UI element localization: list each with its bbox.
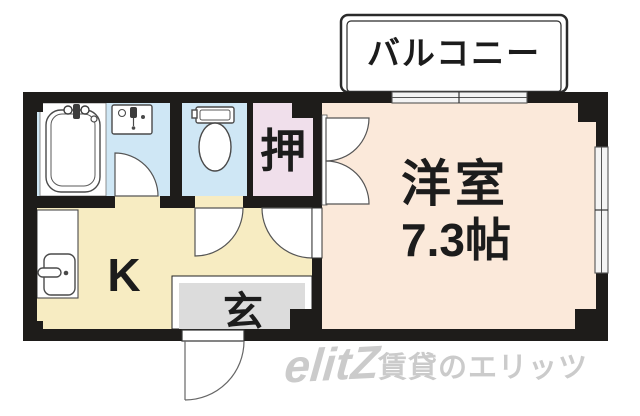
- toilet-tank-icon: [196, 107, 234, 123]
- washbasin-knob-icon: [141, 115, 145, 119]
- floorplan-image: バルコニー 洋室 7.3帖 押 K 玄 elitZ 賃貸のエリッツ: [0, 0, 640, 416]
- kitchen-label: K: [107, 252, 140, 298]
- wall-left: [23, 92, 37, 341]
- living-door-leaf: [312, 208, 322, 258]
- living-room-label: 洋室: [401, 159, 509, 209]
- front-door-swing-arc: [185, 341, 244, 400]
- wall-toilet-closet: [247, 103, 253, 208]
- pillar-bottom-right: [575, 309, 608, 341]
- bathtub-unit: [40, 103, 106, 196]
- wall-notch-top: [292, 92, 322, 118]
- living-room-size: 7.3帖: [401, 217, 511, 263]
- toilet-bowl-icon: [199, 123, 231, 171]
- bathtub-icon: [46, 110, 100, 192]
- bath-tap-left-icon: [64, 106, 72, 114]
- pillar-top-left: [23, 92, 43, 112]
- washbasin-faucet-icon: [130, 107, 137, 118]
- washbasin-drain-icon: [132, 126, 136, 130]
- wall-bottom-left: [23, 329, 182, 341]
- wall-mid-c: [243, 196, 322, 208]
- closet-label: 押: [260, 128, 306, 174]
- pillar-top-right: [578, 92, 608, 122]
- wall-mid-a: [37, 196, 115, 208]
- kitchen-drain-icon: [64, 271, 69, 276]
- kitchen-faucet-icon: [38, 268, 61, 277]
- pillar-bottom-left: [23, 321, 43, 341]
- bath-tap-right-icon: [81, 106, 89, 114]
- wall-bath-toilet: [170, 103, 182, 208]
- watermark-text: 賃貸のエリッツ: [378, 344, 588, 386]
- bath-faucet-icon: [73, 104, 80, 119]
- balcony-label: バルコニー: [367, 37, 541, 70]
- wall-entrance-step: [290, 309, 322, 341]
- watermark-logo: elitZ: [282, 334, 381, 393]
- toilet-handle-icon: [192, 110, 197, 118]
- bath-drain-icon: [91, 116, 97, 122]
- kitchen-unit: [37, 210, 78, 298]
- washbasin-unit: [112, 105, 152, 134]
- entrance-label: 玄: [223, 292, 263, 332]
